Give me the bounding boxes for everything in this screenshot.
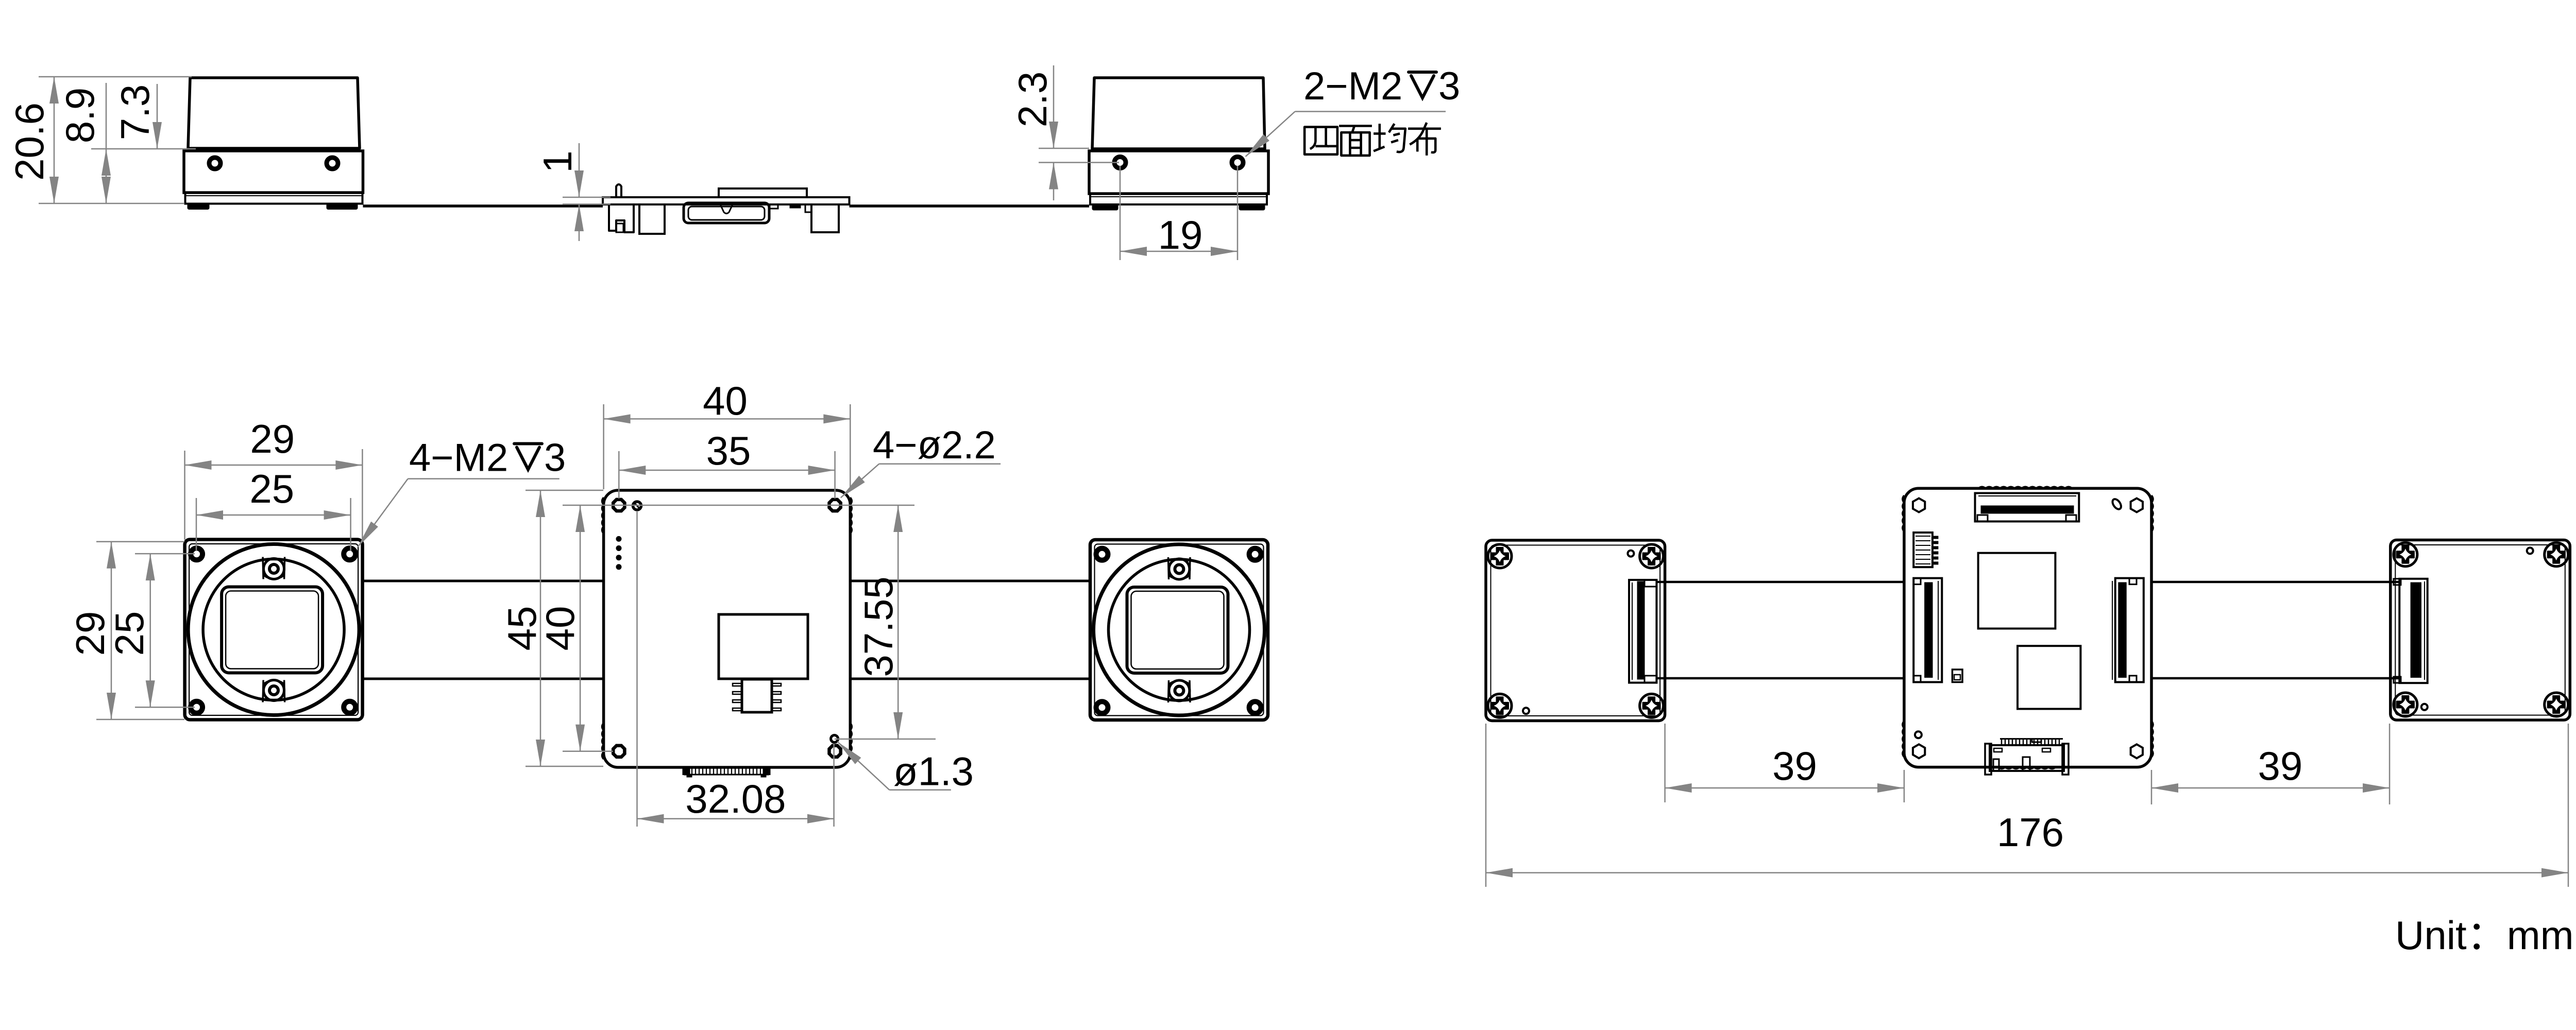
svg-text:ø1.3: ø1.3 <box>893 749 974 794</box>
svg-text:2−M2: 2−M2 <box>1303 64 1402 108</box>
svg-text:Unit：mm: Unit：mm <box>2395 913 2574 958</box>
svg-text:7.3: 7.3 <box>112 84 158 140</box>
svg-text:37.55: 37.55 <box>856 576 901 677</box>
svg-text:4−M2: 4−M2 <box>409 436 508 480</box>
svg-text:8.9: 8.9 <box>57 88 103 143</box>
svg-text:2.3: 2.3 <box>1010 72 1055 127</box>
svg-text:32.08: 32.08 <box>685 776 786 821</box>
svg-text:1: 1 <box>535 150 580 173</box>
svg-text:40: 40 <box>703 378 748 423</box>
svg-text:3: 3 <box>1438 64 1460 108</box>
svg-text:25: 25 <box>107 611 152 656</box>
svg-text:25: 25 <box>249 466 294 511</box>
svg-text:40: 40 <box>537 606 583 651</box>
svg-text:29: 29 <box>250 416 295 461</box>
svg-text:39: 39 <box>1772 743 1817 788</box>
svg-text:39: 39 <box>2258 743 2303 788</box>
svg-text:3: 3 <box>544 436 566 480</box>
svg-text:176: 176 <box>1997 810 2064 855</box>
svg-text:4−ø2.2: 4−ø2.2 <box>873 423 996 467</box>
svg-text:29: 29 <box>67 611 113 656</box>
svg-text:35: 35 <box>706 428 751 473</box>
svg-text:20.6: 20.6 <box>7 102 52 181</box>
svg-text:19: 19 <box>1158 212 1203 257</box>
